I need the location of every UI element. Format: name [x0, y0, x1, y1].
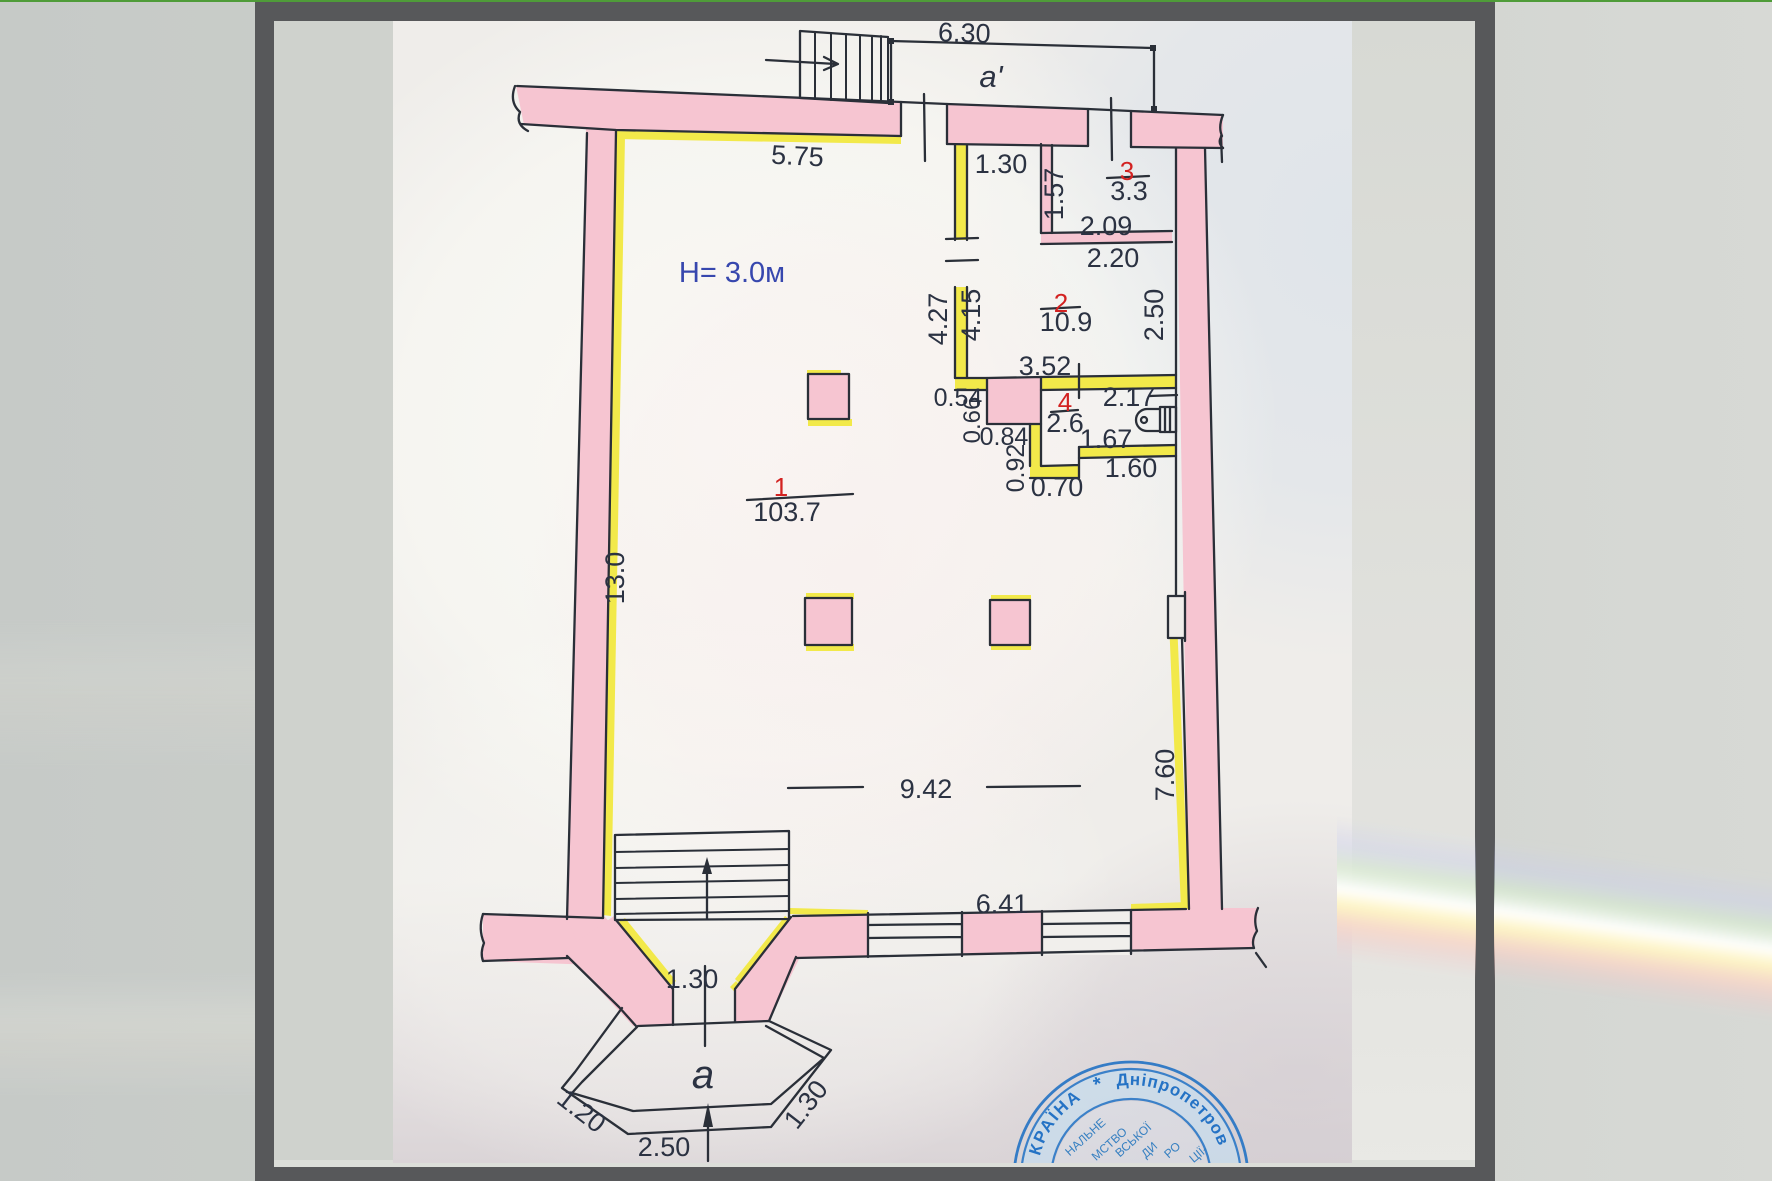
svg-text:6.41: 6.41 — [976, 889, 1029, 919]
svg-text:0.70: 0.70 — [1031, 472, 1084, 502]
svg-text:3.52: 3.52 — [1019, 351, 1072, 381]
svg-text:13.0: 13.0 — [600, 552, 630, 605]
svg-text:a: a — [692, 1053, 714, 1097]
svg-text:4.27: 4.27 — [923, 293, 953, 346]
svg-text:1.30: 1.30 — [666, 964, 719, 994]
svg-text:1.57: 1.57 — [1039, 168, 1069, 221]
svg-text:4.15: 4.15 — [956, 289, 986, 342]
svg-text:7.60: 7.60 — [1150, 749, 1180, 802]
svg-text:1.30: 1.30 — [975, 149, 1028, 179]
svg-text:2.50: 2.50 — [1139, 289, 1169, 342]
svg-text:2.09: 2.09 — [1080, 211, 1133, 241]
svg-text:6.30: 6.30 — [938, 17, 992, 49]
svg-text:0.92: 0.92 — [1002, 444, 1030, 493]
svg-text:2.20: 2.20 — [1087, 243, 1140, 273]
svg-text:a': a' — [979, 59, 1003, 94]
svg-text:1.60: 1.60 — [1105, 453, 1158, 483]
svg-text:103.7: 103.7 — [753, 497, 821, 527]
svg-text:2.17: 2.17 — [1103, 382, 1156, 412]
svg-text:10.9: 10.9 — [1040, 307, 1093, 337]
svg-text:1.67: 1.67 — [1080, 424, 1133, 454]
svg-text:3.3: 3.3 — [1110, 176, 1148, 206]
svg-text:2.6: 2.6 — [1046, 408, 1084, 438]
svg-text:2.50: 2.50 — [638, 1132, 691, 1162]
svg-text:H= 3.0м: H= 3.0м — [679, 257, 785, 289]
svg-text:9.42: 9.42 — [900, 774, 953, 804]
svg-text:5.75: 5.75 — [770, 140, 824, 173]
